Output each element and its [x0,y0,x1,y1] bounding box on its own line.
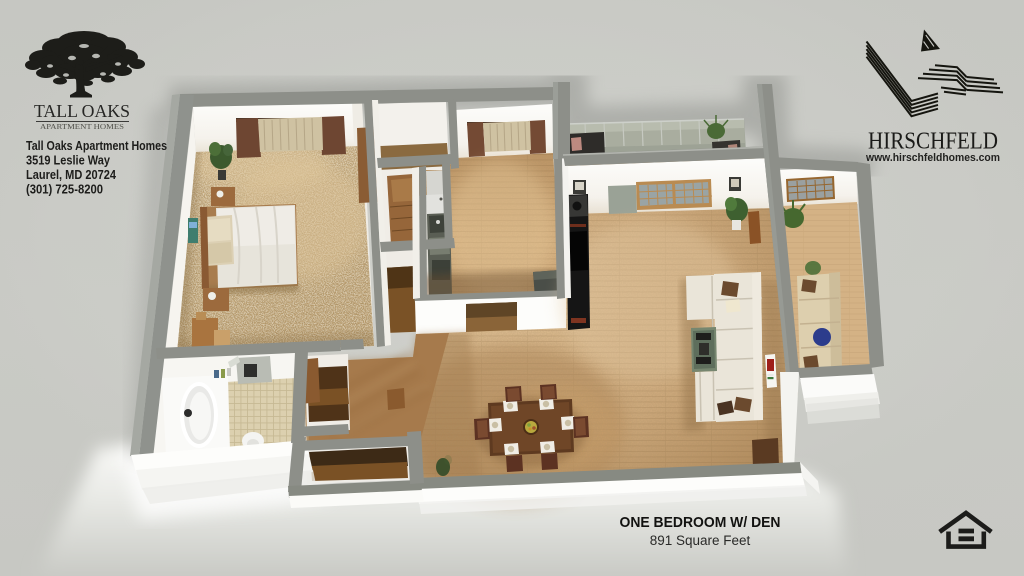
svg-text:(301) 725-8200: (301) 725-8200 [26,183,103,197]
svg-text:TALL OAKS: TALL OAKS [34,101,130,121]
svg-text:Tall Oaks Apartment Homes: Tall Oaks Apartment Homes [26,139,167,153]
svg-text:3519 Leslie Way: 3519 Leslie Way [26,154,110,168]
svg-text:APARTMENT HOMES: APARTMENT HOMES [40,123,124,131]
svg-text:www.hirschfeldhomes.com: www.hirschfeldhomes.com [865,152,1000,164]
svg-text:HIRSCHFELD: HIRSCHFELD [868,129,998,155]
svg-text:891 Square Feet: 891 Square Feet [650,533,751,548]
svg-text:Laurel, MD 20724: Laurel, MD 20724 [26,168,116,182]
svg-text:ONE BEDROOM W/ DEN: ONE BEDROOM W/ DEN [620,514,781,531]
